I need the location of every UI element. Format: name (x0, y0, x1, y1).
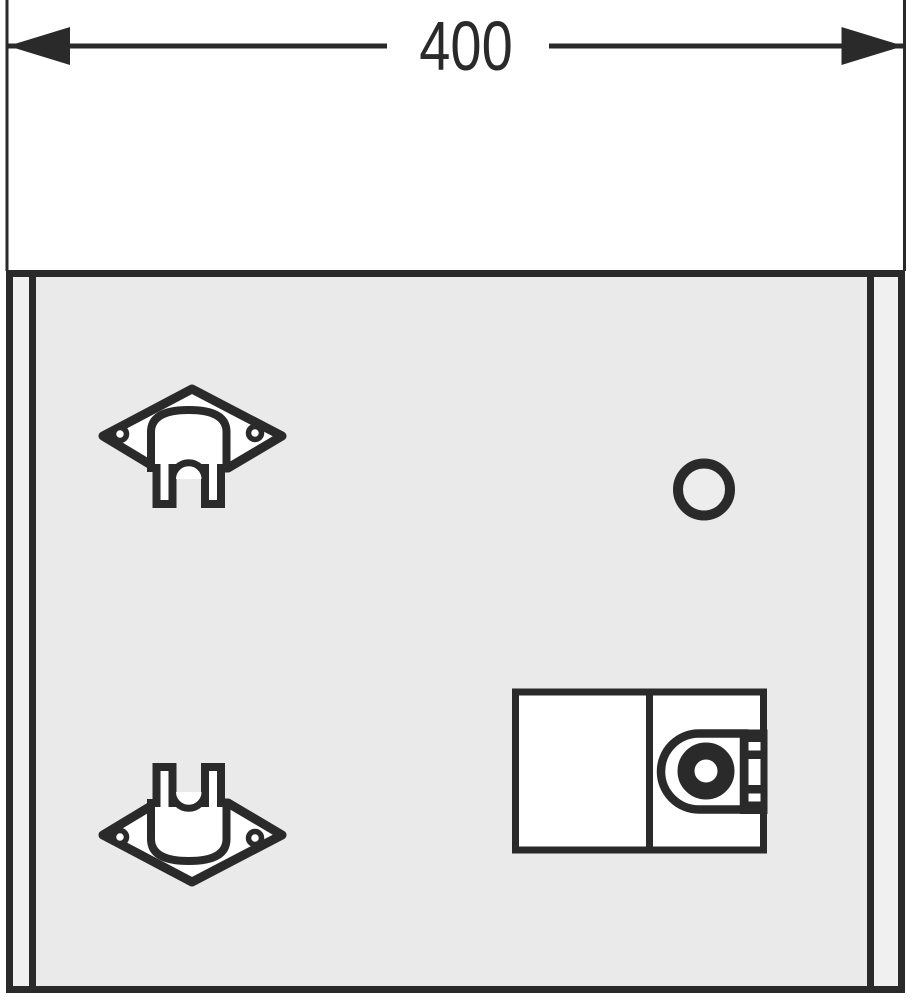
lock-latch-notch-middle (749, 759, 761, 785)
dimension-label: 400 (419, 8, 512, 85)
drawing-canvas: 400 (0, 0, 913, 1000)
width-dimension: 400 (7, 0, 905, 271)
lock-unit-icon (516, 689, 768, 854)
panel-face (10, 274, 902, 990)
technical-drawing: 400 (0, 0, 913, 1000)
front-panel (10, 274, 902, 990)
panel-side-strip-right (874, 277, 898, 986)
lock-latch-notch-bottom (749, 794, 761, 802)
arrowhead-left-icon (8, 27, 70, 65)
round-hole-icon (678, 464, 730, 516)
lock-latch-notch-top (749, 742, 761, 751)
panel-side-strip-left (13, 277, 29, 986)
arrowhead-right-icon (842, 27, 904, 65)
